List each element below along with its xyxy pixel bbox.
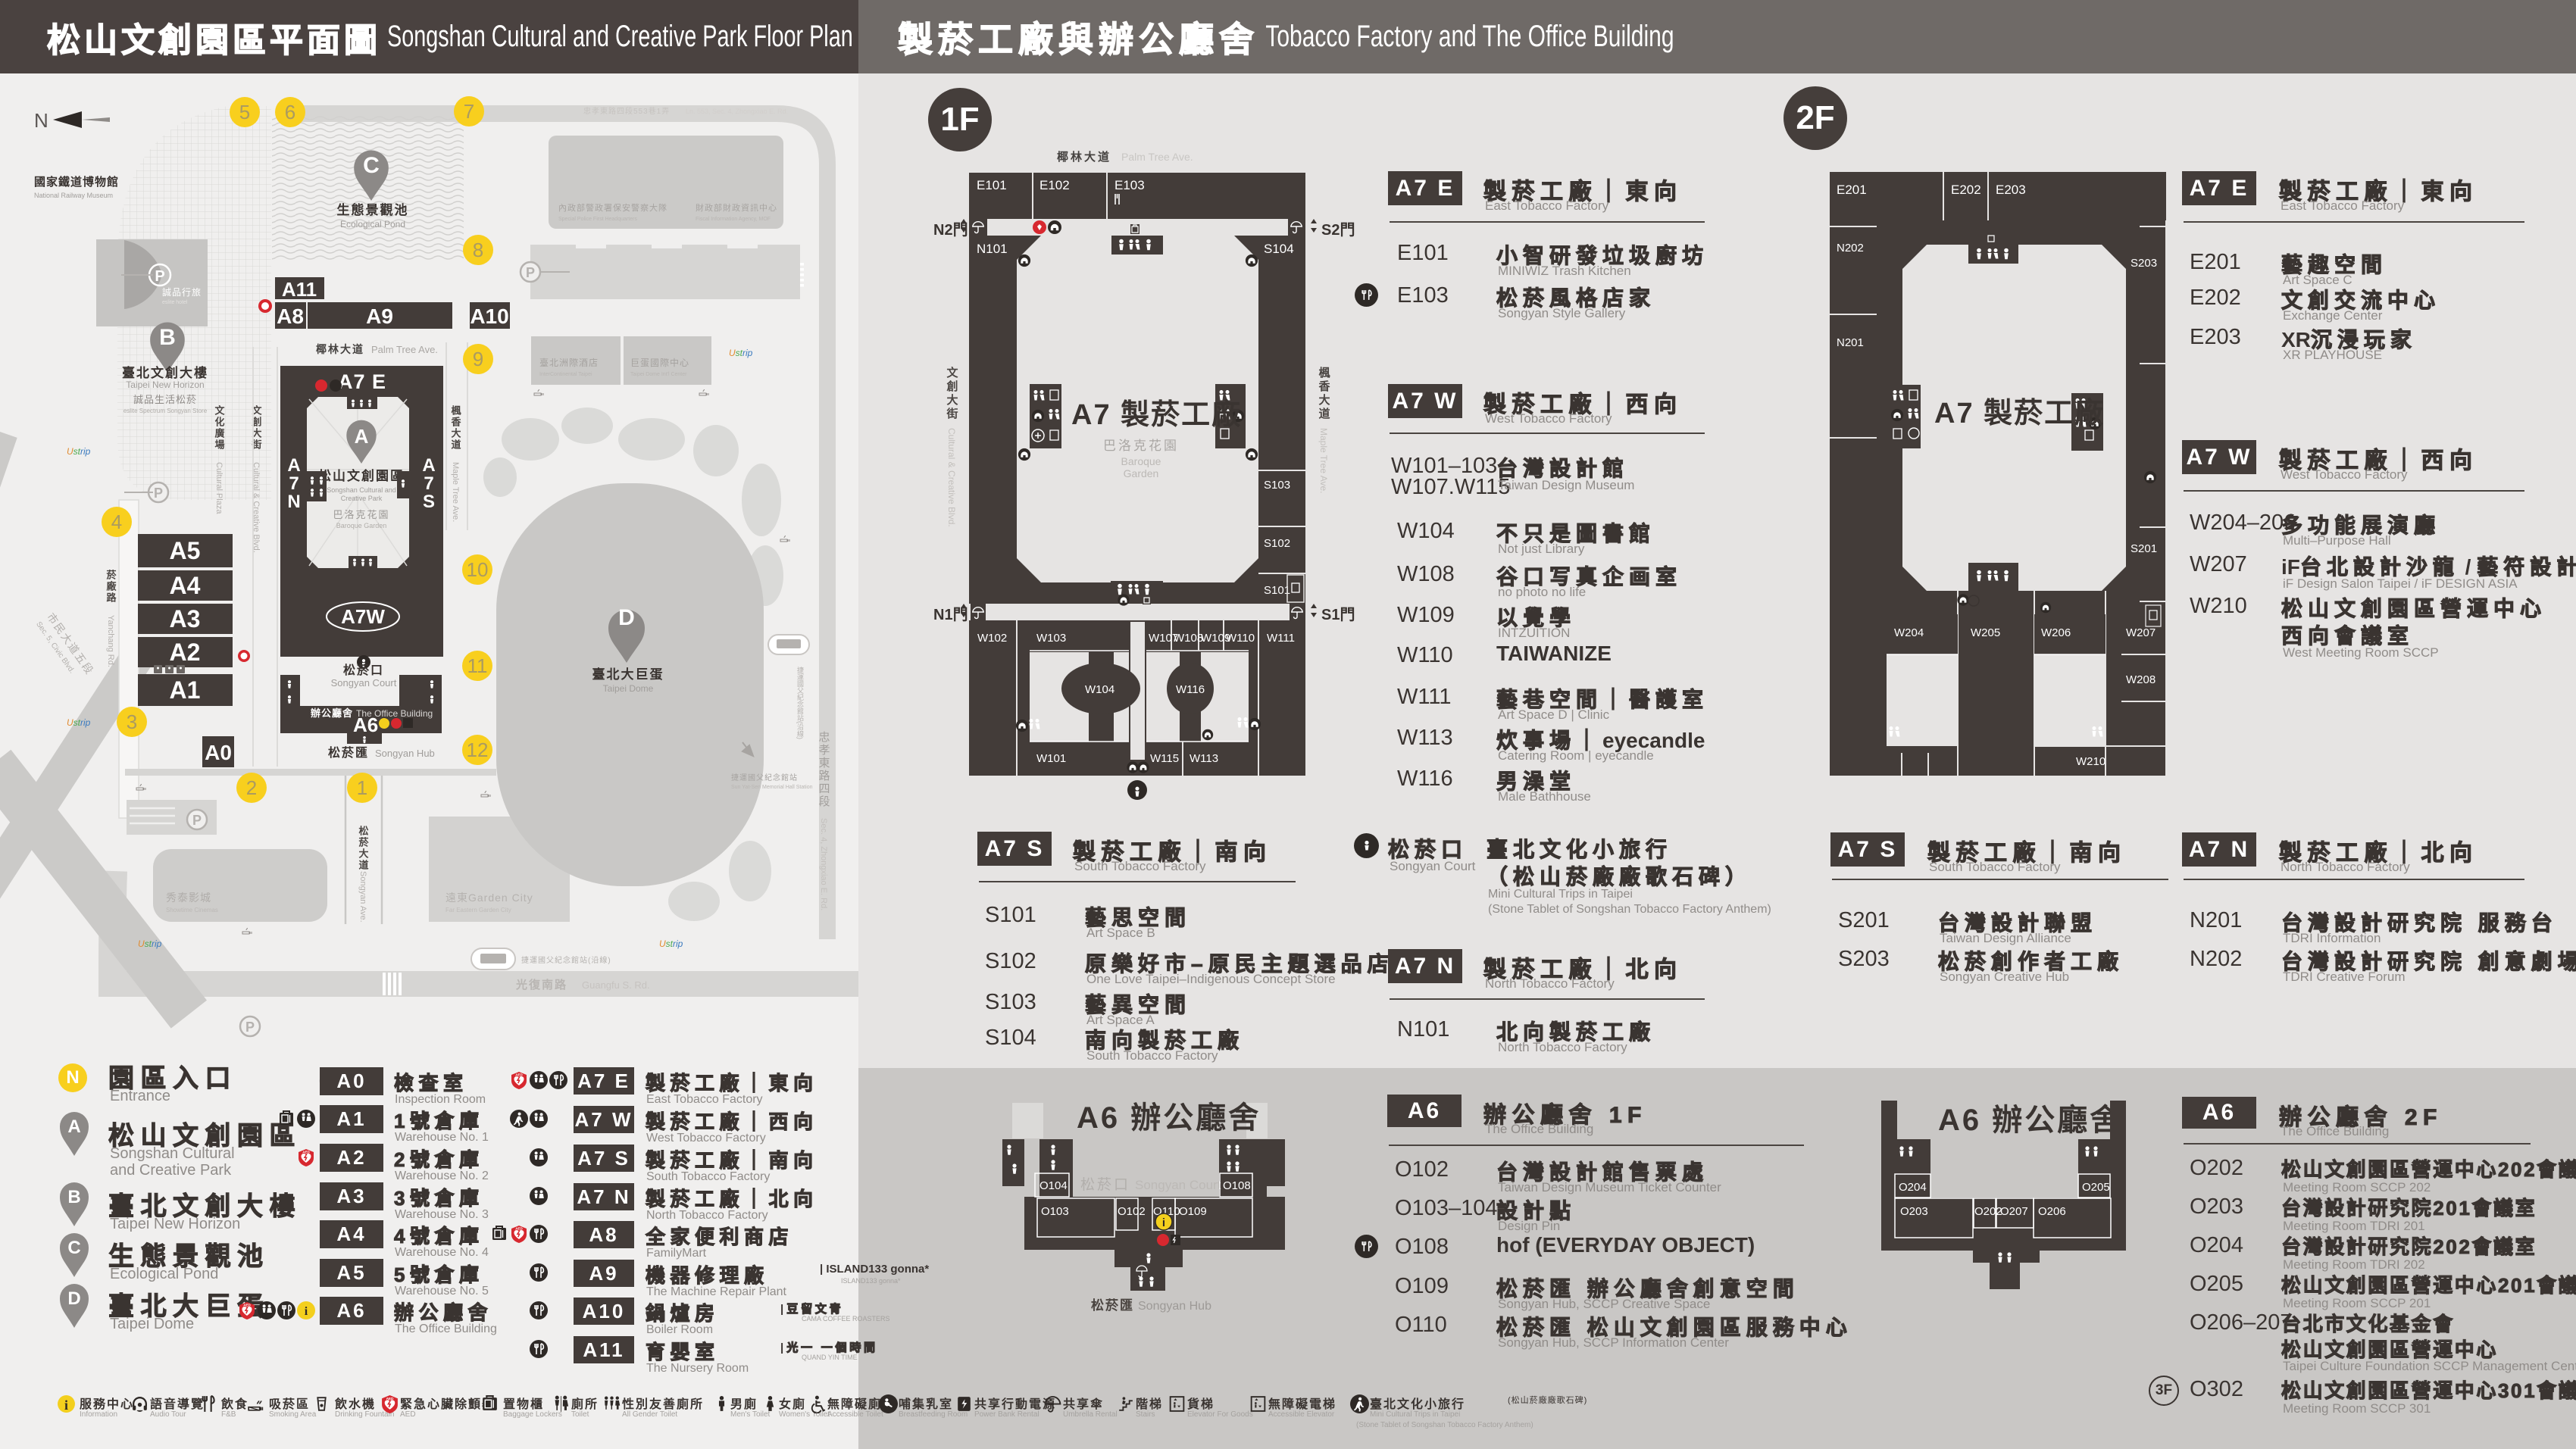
svg-text:O104: O104 <box>1039 1179 1068 1192</box>
svg-text:W208: W208 <box>2126 673 2156 686</box>
svg-text:Songyan Hub: Songyan Hub <box>1138 1300 1211 1313</box>
svg-text:Garden: Garden <box>1124 467 1159 479</box>
svg-text:S1門: S1門 <box>1321 606 1355 623</box>
svg-text:捷運國父紀念館站(沿線): 捷運國父紀念館站(沿線) <box>521 955 611 965</box>
svg-text:W113: W113 <box>1190 752 1218 765</box>
svg-text:Taipei Dome Int'l Center: Taipei Dome Int'l Center <box>630 372 687 377</box>
svg-text:A2: A2 <box>170 639 201 666</box>
svg-text:E201: E201 <box>1837 183 1867 197</box>
svg-text:A7 製菸工廠: A7 製菸工廠 <box>1071 398 1242 431</box>
svg-text:7: 7 <box>464 100 474 123</box>
svg-text:S102: S102 <box>1264 537 1290 550</box>
svg-text:Cultural Plaza: Cultural Plaza <box>214 462 224 514</box>
svg-text:W108: W108 <box>1174 632 1203 645</box>
svg-text:1: 1 <box>357 776 367 799</box>
svg-text:A: A <box>67 1116 80 1137</box>
svg-text:Ustrip: Ustrip <box>67 446 91 457</box>
svg-text:生態景觀池: 生態景觀池 <box>337 202 409 217</box>
svg-text:InterContinental Taipei: InterContinental Taipei <box>539 372 592 377</box>
svg-text:2: 2 <box>246 776 257 799</box>
svg-text:O204: O204 <box>1899 1181 1927 1194</box>
svg-text:椰林大道: 椰林大道 <box>1057 150 1111 164</box>
svg-text:6: 6 <box>285 101 295 123</box>
svg-text:D: D <box>618 605 635 630</box>
svg-text:Maple Tree Ave.: Maple Tree Ave. <box>451 462 460 522</box>
svg-text:A3: A3 <box>170 605 201 632</box>
svg-text:S2門: S2門 <box>1321 221 1355 239</box>
svg-text:文創大街: 文創大街 <box>946 366 959 421</box>
svg-text:Far Eastern Garden City: Far Eastern Garden City <box>445 907 511 913</box>
svg-text:A11: A11 <box>282 278 317 301</box>
svg-text:W116: W116 <box>1176 683 1205 696</box>
svg-text:巴洛克花園: 巴洛克花園 <box>333 509 389 520</box>
svg-text:光復南路: 光復南路 <box>515 978 567 992</box>
svg-text:松菸匯: 松菸匯 <box>328 745 369 760</box>
svg-text:Ecological Pond: Ecological Pond <box>340 219 405 230</box>
svg-text:Taipei Dome: Taipei Dome <box>603 683 654 694</box>
svg-text:O202: O202 <box>1974 1205 2002 1218</box>
svg-text:A: A <box>422 455 435 476</box>
svg-text:楓香大道: 楓香大道 <box>1318 366 1330 421</box>
svg-text:O205: O205 <box>2082 1181 2110 1194</box>
svg-text:臺北文創大樓: 臺北文創大樓 <box>122 365 208 380</box>
svg-text:W103: W103 <box>1036 632 1066 645</box>
svg-text:Baroque Garden: Baroque Garden <box>336 522 387 529</box>
svg-text:eslite Spectrum Songyan Store: eslite Spectrum Songyan Store <box>123 408 208 414</box>
svg-text:A9: A9 <box>366 304 393 328</box>
svg-text:臺北大巨蛋: 臺北大巨蛋 <box>592 667 664 682</box>
svg-text:Yanchang Rd.: Yanchang Rd. <box>106 615 115 667</box>
svg-text:W204: W204 <box>1894 626 1924 639</box>
svg-text:3: 3 <box>127 710 137 733</box>
svg-text:P: P <box>192 813 202 828</box>
svg-text:Songshan Cultural and: Songshan Cultural and <box>327 486 396 494</box>
svg-text:A1: A1 <box>170 676 201 704</box>
svg-text:i: i <box>1162 1216 1165 1229</box>
svg-text:巴洛克花園: 巴洛克花園 <box>1103 439 1179 453</box>
svg-text:內政部警政署保安警察大隊: 內政部警政署保安警察大隊 <box>558 202 667 213</box>
svg-text:E202: E202 <box>1951 183 1981 197</box>
svg-text:Fiscal Information Agency, MOF: Fiscal Information Agency, MOF <box>696 217 771 222</box>
svg-text:O206: O206 <box>2038 1205 2066 1218</box>
svg-text:W207: W207 <box>2126 626 2156 639</box>
svg-text:Showtime Cinemas: Showtime Cinemas <box>166 907 218 913</box>
svg-text:W210: W210 <box>2076 755 2106 768</box>
svg-text:椰林大道: 椰林大道 <box>316 343 364 355</box>
svg-text:eslite hotel: eslite hotel <box>162 300 188 305</box>
svg-text:楓香大道: 楓香大道 <box>450 404 462 451</box>
svg-text:Creative Park: Creative Park <box>341 495 383 502</box>
svg-text:W102: W102 <box>977 632 1007 645</box>
svg-text:Ln. 553, Sec. 4, Zhongxiao E.: Ln. 553, Sec. 4, Zhongxiao E. Rd. <box>686 108 788 115</box>
svg-text:Ustrip: Ustrip <box>729 348 753 358</box>
svg-text:O108: O108 <box>1223 1179 1251 1192</box>
svg-text:P: P <box>526 265 535 280</box>
svg-text:S: S <box>423 492 435 512</box>
svg-text:S104: S104 <box>1264 242 1294 256</box>
svg-text:W111: W111 <box>1267 632 1295 645</box>
svg-text:A: A <box>287 455 300 476</box>
svg-text:N201: N201 <box>1837 336 1864 349</box>
svg-text:Palm Tree Ave.: Palm Tree Ave. <box>1121 151 1193 163</box>
svg-text:松菸匯: 松菸匯 <box>1091 1298 1134 1313</box>
svg-text:Ustrip: Ustrip <box>67 717 91 728</box>
svg-text:秀泰影城: 秀泰影城 <box>166 892 211 904</box>
svg-text:Songyan Ave.: Songyan Ave. <box>358 871 367 923</box>
svg-text:Guangfu S. Rd.: Guangfu S. Rd. <box>582 979 650 991</box>
svg-text:N101: N101 <box>977 242 1008 256</box>
svg-text:松山文創園區: 松山文創園區 <box>318 468 405 483</box>
svg-text:A7 製菸工廠: A7 製菸工廠 <box>1934 397 2105 429</box>
svg-text:4: 4 <box>111 511 122 533</box>
svg-text:9: 9 <box>473 348 483 370</box>
svg-text:S203: S203 <box>2131 257 2157 270</box>
svg-text:A6 辦公廳舍: A6 辦公廳舍 <box>1077 1101 1261 1135</box>
svg-text:Sun Yat-Sen Memorial Hall Stat: Sun Yat-Sen Memorial Hall Station <box>731 785 813 790</box>
svg-text:5: 5 <box>239 101 250 123</box>
svg-text:C: C <box>363 153 380 178</box>
svg-text:D: D <box>67 1288 80 1309</box>
svg-text:A5: A5 <box>170 537 201 564</box>
svg-text:Sec. 4, Zhongxiao E. Rd.: Sec. 4, Zhongxiao E. Rd. <box>819 818 828 910</box>
svg-text:W101: W101 <box>1036 752 1066 765</box>
svg-text:Palm Tree Ave.: Palm Tree Ave. <box>371 344 438 355</box>
svg-text:A7W: A7W <box>341 605 385 628</box>
svg-text:Maple Tree Ave.: Maple Tree Ave. <box>1318 428 1329 494</box>
svg-text:A8: A8 <box>277 304 304 328</box>
svg-text:捷運國父紀念館站: 捷運國父紀念館站 <box>731 773 798 782</box>
svg-text:忠孝東路四段: 忠孝東路四段 <box>818 731 830 808</box>
svg-text:National Railway Museum: National Railway Museum <box>34 192 113 199</box>
svg-text:松菸口: 松菸口 <box>343 663 384 677</box>
svg-text:E101: E101 <box>977 178 1007 192</box>
svg-text:辦公廳舍: 辦公廳舍 <box>311 707 353 719</box>
svg-text:O203: O203 <box>1900 1205 1928 1218</box>
svg-text:松菸大道: 松菸大道 <box>358 825 369 871</box>
svg-text:W115: W115 <box>1150 752 1179 765</box>
svg-text:S103: S103 <box>1264 479 1290 492</box>
svg-text:臺北洲際酒店: 臺北洲際酒店 <box>539 357 599 368</box>
svg-text:松菸口: 松菸口 <box>1080 1176 1130 1193</box>
svg-text:O102: O102 <box>1118 1205 1146 1218</box>
svg-text:E103: E103 <box>1114 178 1145 192</box>
svg-text:A0: A0 <box>205 741 232 764</box>
svg-text:7: 7 <box>289 473 299 494</box>
svg-text:Ustrip: Ustrip <box>659 938 683 949</box>
svg-text:A10: A10 <box>470 304 508 328</box>
svg-text:B: B <box>159 325 176 350</box>
svg-text:Songyan Court: Songyan Court <box>1135 1178 1221 1192</box>
svg-text:E203: E203 <box>1996 183 2026 197</box>
svg-text:P: P <box>245 1020 255 1035</box>
svg-text:Songyan Court: Songyan Court <box>331 677 397 689</box>
svg-text:W110: W110 <box>1226 632 1255 645</box>
svg-text:Cultural & Creative Blvd.: Cultural & Creative Blvd. <box>946 428 957 527</box>
svg-text:忠孝東路四段553巷1弄: 忠孝東路四段553巷1弄 <box>583 106 670 116</box>
svg-text:N: N <box>34 109 48 132</box>
svg-text:E102: E102 <box>1039 178 1070 192</box>
svg-text:A4: A4 <box>170 572 201 599</box>
svg-text:11: 11 <box>467 654 488 677</box>
svg-text:P: P <box>154 486 163 501</box>
svg-text:12: 12 <box>467 739 489 761</box>
svg-text:P: P <box>155 268 164 285</box>
svg-text:O103: O103 <box>1041 1205 1069 1218</box>
svg-text:Taipei New Horizon: Taipei New Horizon <box>126 379 204 390</box>
svg-text:10: 10 <box>467 558 489 581</box>
svg-text:7: 7 <box>424 473 433 494</box>
svg-text:菸廠路: 菸廠路 <box>105 569 117 604</box>
svg-text:財政部財政資訊中心: 財政部財政資訊中心 <box>696 202 777 213</box>
svg-text:C: C <box>67 1238 80 1258</box>
svg-text:Baroque: Baroque <box>1121 455 1161 467</box>
svg-text:A: A <box>355 425 369 448</box>
svg-text:文化廣場: 文化廣場 <box>214 404 225 451</box>
svg-text:O207: O207 <box>2000 1205 2028 1218</box>
svg-text:Special Police First Headquart: Special Police First Headquarters <box>558 217 637 222</box>
svg-text:A7 E: A7 E <box>338 370 386 393</box>
svg-text:W104: W104 <box>1085 683 1114 696</box>
svg-text:W205: W205 <box>1971 626 2000 639</box>
svg-text:N202: N202 <box>1837 242 1864 255</box>
svg-text:A6 辦公廳舍: A6 辦公廳舍 <box>1938 1103 2122 1137</box>
svg-text:W206: W206 <box>2041 626 2071 639</box>
svg-text:B: B <box>67 1187 80 1207</box>
svg-text:O109: O109 <box>1179 1205 1207 1218</box>
svg-text:A6: A6 <box>353 714 378 736</box>
svg-text:文創大街: 文創大街 <box>251 404 263 451</box>
svg-text:S101: S101 <box>1264 584 1290 597</box>
svg-text:Songyan Hub: Songyan Hub <box>375 748 435 759</box>
svg-text:Ustrip: Ustrip <box>138 938 162 949</box>
svg-text:N: N <box>287 492 300 512</box>
svg-text:遠東Garden City: 遠東Garden City <box>445 892 533 904</box>
svg-text:8: 8 <box>473 239 483 261</box>
svg-text:巨蛋國際中心: 巨蛋國際中心 <box>630 357 689 368</box>
svg-text:S201: S201 <box>2131 542 2157 555</box>
svg-text:國家鐵道博物館: 國家鐵道博物館 <box>34 175 119 189</box>
svg-text:誠品行旅: 誠品行旅 <box>162 287 202 298</box>
svg-text:捷運國父紀念館站(沿線): 捷運國父紀念館站(沿線) <box>796 666 804 739</box>
svg-text:誠品生活松菸: 誠品生活松菸 <box>133 394 197 405</box>
